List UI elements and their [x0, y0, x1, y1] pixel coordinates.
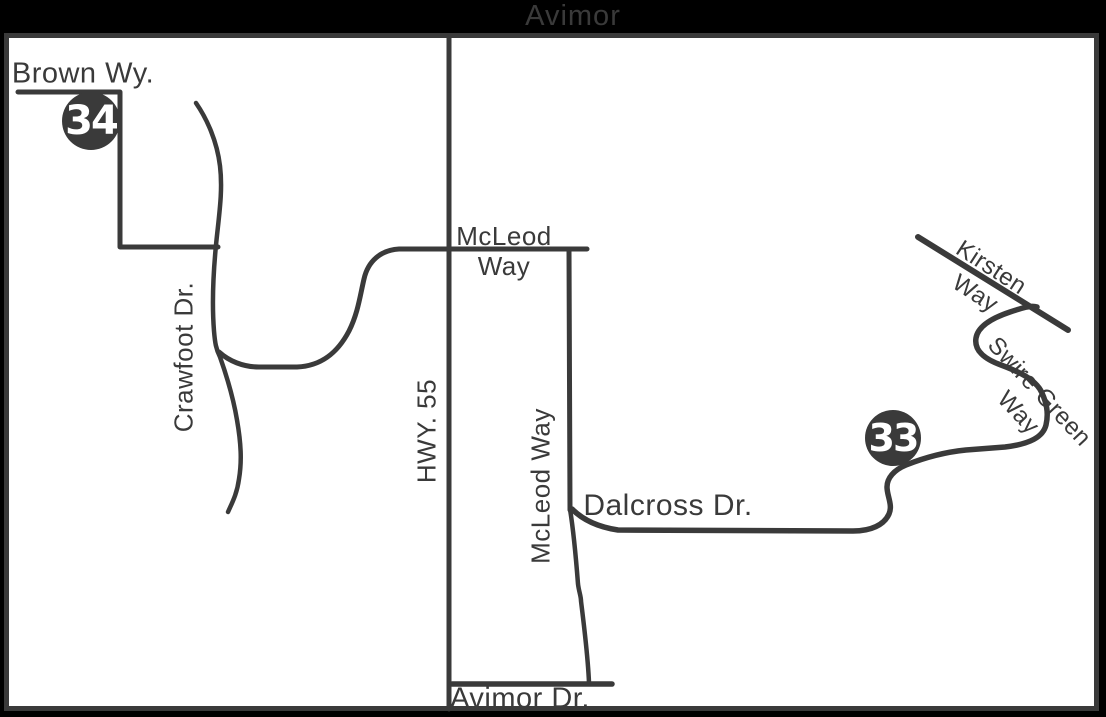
road-mcleod-way-lower [570, 509, 589, 683]
label-mcleod-way-vertical: McLeod Way [526, 408, 557, 564]
marker-lot-34: 34 [62, 92, 120, 150]
road-crawfoot-dr [196, 103, 241, 512]
label-dalcross-dr: Dalcross Dr. [583, 489, 752, 523]
label-mcleod-way-top-line1: McLeod [456, 221, 552, 251]
map-stage: Avimor Brown Wy. Crawfoot Dr. HWY. 55 Mc… [0, 0, 1106, 717]
label-crawfoot-dr: Crawfoot Dr. [169, 282, 200, 433]
label-hwy-55: HWY. 55 [412, 379, 443, 483]
label-mcleod-way-top: McLeod Way [456, 221, 552, 281]
label-mcleod-way-top-line2: Way [456, 251, 552, 281]
marker-lot-33: 33 [865, 410, 921, 466]
label-avimor-dr: Avimor Dr. [450, 683, 590, 716]
road-mcleod-way-vertical [569, 249, 570, 510]
marker-lot-33-number: 33 [869, 416, 918, 460]
road-network [0, 0, 1106, 717]
label-brown-wy: Brown Wy. [12, 58, 154, 91]
marker-lot-34-number: 34 [65, 98, 117, 144]
